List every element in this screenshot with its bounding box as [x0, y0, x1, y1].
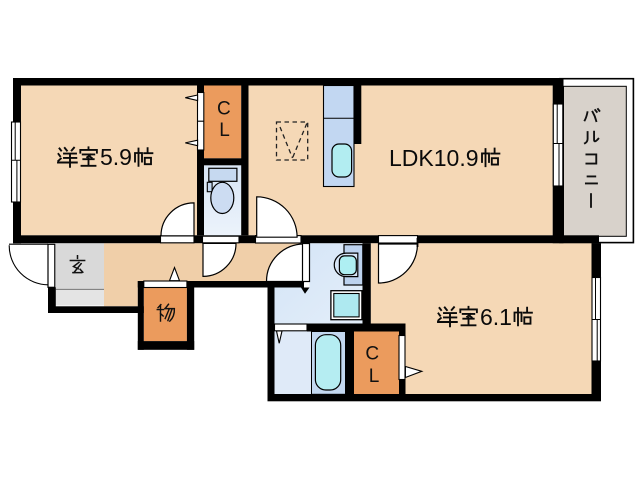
- svg-text:6.1: 6.1: [480, 304, 512, 330]
- svg-text:L: L: [369, 366, 380, 387]
- svg-text:C: C: [217, 99, 231, 120]
- svg-text:L: L: [219, 120, 230, 141]
- svg-text:5.9: 5.9: [100, 144, 132, 170]
- svg-text:C: C: [365, 344, 379, 365]
- svg-text:LDK10.9: LDK10.9: [389, 145, 479, 171]
